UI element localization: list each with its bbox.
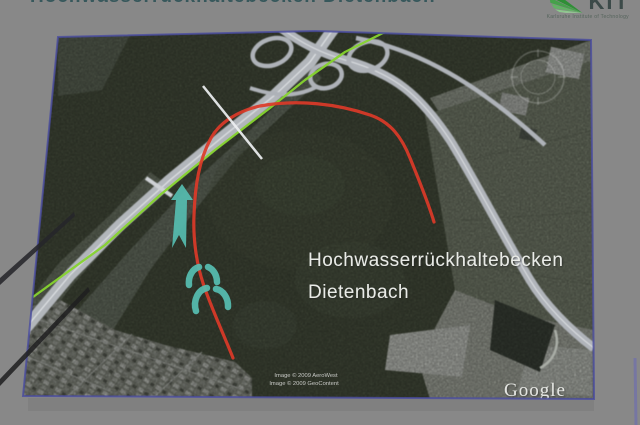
slide-scene: Hochwasserrückhaltebecken Dietenbach Ima…	[0, 0, 640, 425]
map-label-line2: Dietenbach	[308, 282, 409, 303]
screen-edge-line	[635, 358, 636, 425]
kit-logo-row: KIT	[546, 0, 630, 13]
imagery-credit-line1: Image © 2009 AeroWest	[274, 372, 338, 379]
kit-logo-subtitle: Karlsruhe Institute of Technology	[546, 14, 630, 20]
forest-texture	[10, 20, 630, 410]
imagery-credit-line2: Image © 2009 GeoContent	[269, 380, 339, 387]
kit-fan-icon	[546, 0, 586, 13]
kit-logo: KIT Karlsruhe Institute of Technology	[546, 0, 630, 20]
satellite-terrain	[10, 20, 630, 410]
map-label-line1: Hochwasserrückhaltebecken	[308, 250, 563, 271]
map-drop-shadow	[28, 398, 594, 411]
kit-acronym: KIT	[589, 0, 630, 13]
slide-title: Hochwasserrückhaltebecken Dietenbach	[30, 0, 436, 8]
aerial-map-image: Hochwasserrückhaltebecken Dietenbach Ima…	[10, 20, 630, 410]
projected-slide-photo: Hochwasserrückhaltebecken Dietenbach KIT…	[0, 0, 640, 425]
